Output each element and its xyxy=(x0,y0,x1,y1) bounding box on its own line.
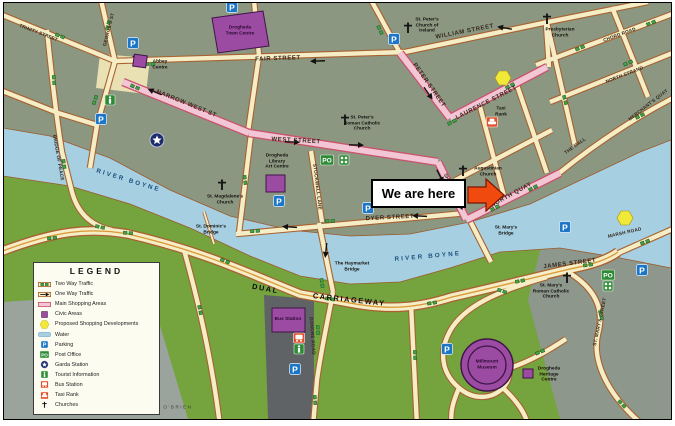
water-icon xyxy=(38,330,51,339)
garda-station-icon xyxy=(150,133,164,147)
legend-label: Proposed Shopping Developments xyxy=(55,321,138,327)
legend-item-parking: Parking xyxy=(38,340,155,350)
parking-icon xyxy=(227,2,238,13)
legend-label: Civic Areas xyxy=(55,311,82,317)
abbey-centre-civic-area xyxy=(133,54,148,68)
town-centre-civic-area xyxy=(212,11,269,53)
legend: LEGEND Two Way Traffic One Way Traffic M… xyxy=(33,262,160,415)
post-office-icon xyxy=(321,155,334,165)
legend-item-one-way: One Way Traffic xyxy=(38,289,155,299)
legend-item-tourist-info: Tourist Information xyxy=(38,370,155,380)
civic-area-icon xyxy=(38,310,51,319)
parking-icon xyxy=(96,114,107,125)
garda-station-icon xyxy=(38,360,51,369)
main-shopping-area-icon xyxy=(38,300,51,309)
legend-item-bus: Bus Station xyxy=(38,380,155,390)
millmount-museum-area xyxy=(461,339,513,391)
heritage-centre-area xyxy=(523,369,533,378)
post-office-icon xyxy=(38,350,51,359)
legend-label: Garda Station xyxy=(55,362,88,368)
legend-item-churches: Churches xyxy=(38,400,155,410)
library-civic-area xyxy=(266,175,285,192)
proposed-shopping-icon xyxy=(38,320,51,329)
legend-item-proposed: Proposed Shopping Developments xyxy=(38,319,155,329)
parking-icon xyxy=(274,196,285,207)
legend-item-civic: Civic Areas xyxy=(38,309,155,319)
legend-item-shopping: Main Shopping Areas xyxy=(38,299,155,309)
legend-label: Main Shopping Areas xyxy=(55,301,106,307)
legend-label: Bus Station xyxy=(55,382,83,388)
parking-icon xyxy=(128,38,139,49)
legend-item-two-way: Two Way Traffic xyxy=(38,279,155,289)
legend-label: Tourist Information xyxy=(55,372,99,378)
legend-label: Churches xyxy=(55,402,78,408)
parking-icon xyxy=(442,344,453,355)
legend-item-taxi: Taxi Rank xyxy=(38,390,155,400)
legend-label: Two Way Traffic xyxy=(55,281,93,287)
tourist-information-icon xyxy=(38,370,51,379)
tourist-information-icon xyxy=(294,344,304,354)
legend-item-water: Water xyxy=(38,329,155,339)
bus-station-civic-area xyxy=(272,308,305,332)
legend-label: Post Office xyxy=(55,352,81,358)
legend-title: LEGEND xyxy=(38,266,155,276)
parking-icon xyxy=(637,265,648,276)
tourist-information-icon xyxy=(105,95,115,105)
legend-label: Taxi Rank xyxy=(55,392,79,398)
taxi-rank-icon xyxy=(38,391,51,400)
church-icon xyxy=(38,401,51,410)
parking-icon xyxy=(560,222,571,233)
bus-station-icon xyxy=(294,333,305,343)
green-grid-icon xyxy=(339,155,349,165)
legend-label: Water xyxy=(55,332,69,338)
drogheda-town-map-screenshot: P PO xyxy=(0,0,675,426)
parking-icon xyxy=(38,340,51,349)
parking-icon xyxy=(290,364,301,375)
bus-station-icon xyxy=(38,380,51,389)
legend-item-post-office: Post Office xyxy=(38,350,155,360)
legend-item-garda: Garda Station xyxy=(38,360,155,370)
legend-label: Parking xyxy=(55,342,73,348)
we-are-here-box: We are here xyxy=(371,179,466,208)
two-way-traffic-icon xyxy=(38,280,51,289)
green-grid-icon xyxy=(603,281,613,291)
post-office-icon xyxy=(602,270,615,280)
legend-label: One Way Traffic xyxy=(55,291,93,297)
parking-icon xyxy=(389,34,400,45)
one-way-traffic-icon xyxy=(38,290,51,299)
taxi-rank-icon xyxy=(487,117,498,127)
